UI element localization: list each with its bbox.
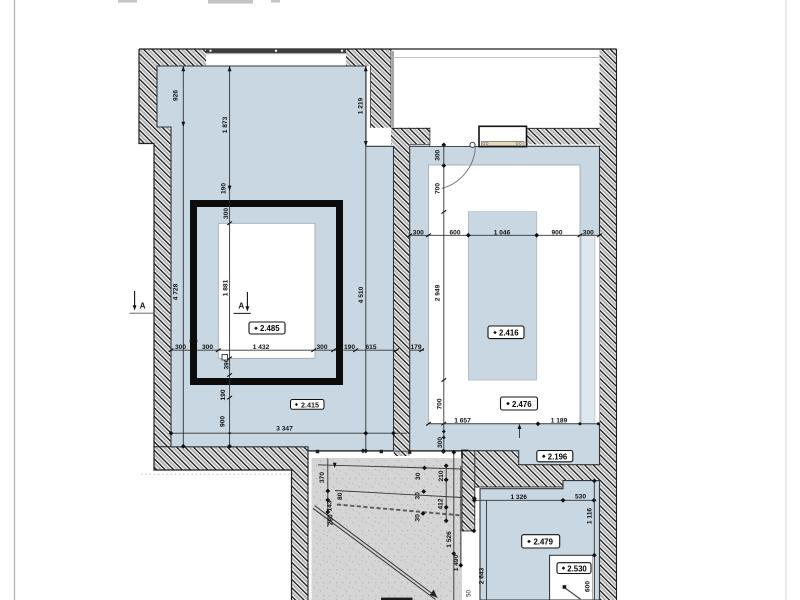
svg-text:2.485: 2.485 [260, 324, 280, 333]
svg-text:300: 300 [435, 149, 442, 160]
svg-text:530: 530 [575, 494, 586, 501]
svg-text:280: 280 [327, 514, 334, 525]
svg-text:300: 300 [175, 344, 186, 351]
svg-text:1 326: 1 326 [510, 494, 527, 501]
svg-text:600: 600 [449, 229, 460, 236]
svg-text:1 490: 1 490 [453, 554, 460, 571]
svg-text:1 189: 1 189 [551, 417, 568, 424]
svg-text:50: 50 [467, 590, 473, 597]
svg-text:2.479: 2.479 [533, 538, 553, 547]
svg-text:3 347: 3 347 [276, 426, 293, 433]
svg-text:A: A [140, 302, 146, 311]
svg-text:190: 190 [344, 344, 355, 351]
svg-text:30: 30 [415, 472, 422, 480]
svg-text:4 728: 4 728 [173, 283, 180, 300]
svg-text:190: 190 [220, 389, 227, 400]
svg-text:300: 300 [223, 208, 230, 219]
svg-text:700: 700 [435, 183, 442, 194]
svg-text:30: 30 [414, 492, 421, 500]
svg-text:1 432: 1 432 [253, 344, 270, 351]
svg-text:370: 370 [319, 472, 326, 483]
svg-text:1 219: 1 219 [358, 97, 365, 114]
svg-text:2.530: 2.530 [567, 564, 587, 573]
svg-text:179: 179 [410, 344, 421, 351]
svg-text:615: 615 [365, 344, 376, 351]
svg-text:2.196: 2.196 [548, 452, 568, 461]
svg-text:700: 700 [436, 398, 443, 409]
svg-text:210: 210 [438, 470, 445, 481]
svg-text:300: 300 [316, 344, 327, 351]
svg-text:30: 30 [414, 514, 421, 522]
svg-text:2 949: 2 949 [435, 284, 442, 301]
svg-text:2 643: 2 643 [479, 567, 486, 584]
svg-text:143: 143 [327, 500, 334, 511]
svg-text:1 881: 1 881 [223, 279, 230, 296]
svg-text:1 657: 1 657 [454, 417, 471, 424]
svg-text:80: 80 [337, 492, 344, 500]
svg-text:2.415: 2.415 [301, 400, 319, 409]
svg-text:600: 600 [585, 581, 592, 592]
svg-text:900: 900 [220, 416, 227, 427]
svg-text:190: 190 [220, 183, 227, 194]
svg-text:2.476: 2.476 [512, 400, 532, 409]
svg-text:900: 900 [551, 229, 562, 236]
svg-text:1 526: 1 526 [446, 531, 453, 548]
svg-text:300: 300 [413, 229, 424, 236]
svg-text:2.416: 2.416 [499, 329, 519, 338]
svg-text:300: 300 [437, 437, 444, 448]
svg-text:926: 926 [173, 90, 180, 101]
svg-text:300: 300 [583, 229, 594, 236]
svg-text:1 873: 1 873 [222, 116, 229, 133]
svg-text:300: 300 [202, 344, 213, 351]
svg-text:412: 412 [438, 498, 445, 509]
svg-text:A: A [238, 302, 244, 311]
svg-text:1 116: 1 116 [587, 508, 594, 524]
svg-text:1 046: 1 046 [494, 229, 511, 236]
svg-text:4 510: 4 510 [358, 286, 365, 303]
